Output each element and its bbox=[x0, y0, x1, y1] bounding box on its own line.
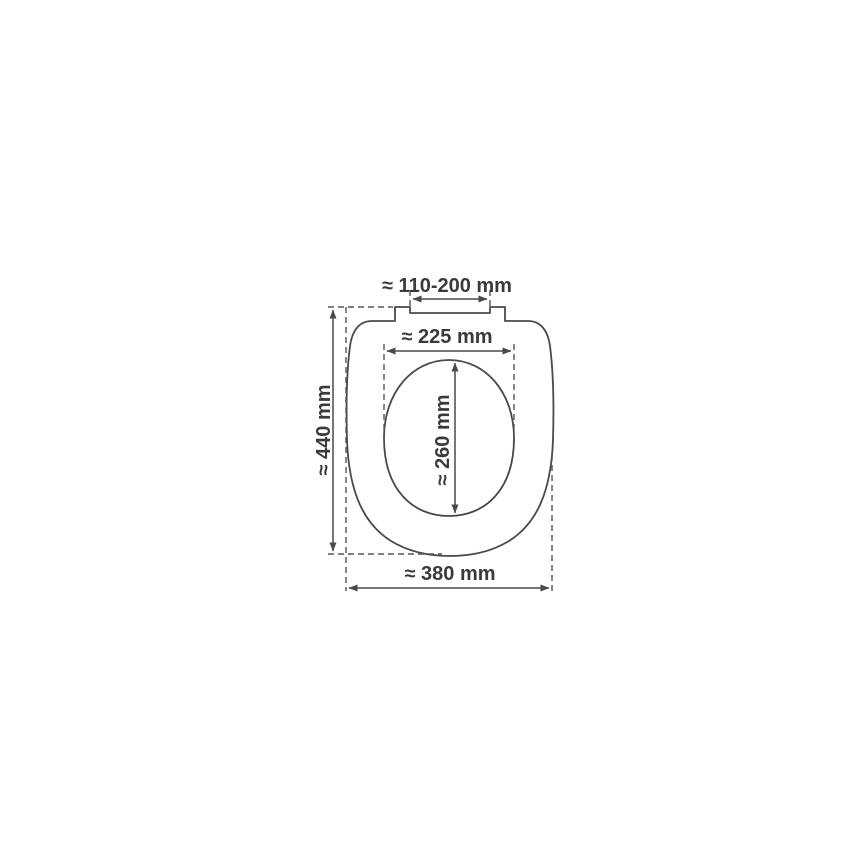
inner-height-label: ≈ 260 mm bbox=[432, 394, 454, 485]
toilet-seat-dimension-diagram: ≈ 110-200 mm ≈ 225 mm ≈ 440 mm ≈ 260 mm … bbox=[0, 0, 868, 868]
inner-width-label: ≈ 225 mm bbox=[401, 326, 492, 348]
hinge-spacing-label: ≈ 110-200 mm bbox=[382, 275, 512, 297]
diagram-canvas: ≈ 110-200 mm ≈ 225 mm ≈ 440 mm ≈ 260 mm … bbox=[0, 0, 868, 868]
outer-width-label: ≈ 380 mm bbox=[404, 563, 495, 585]
dim-inner-height: ≈ 260 mm bbox=[432, 363, 455, 513]
outer-height-label: ≈ 440 mm bbox=[313, 384, 335, 475]
